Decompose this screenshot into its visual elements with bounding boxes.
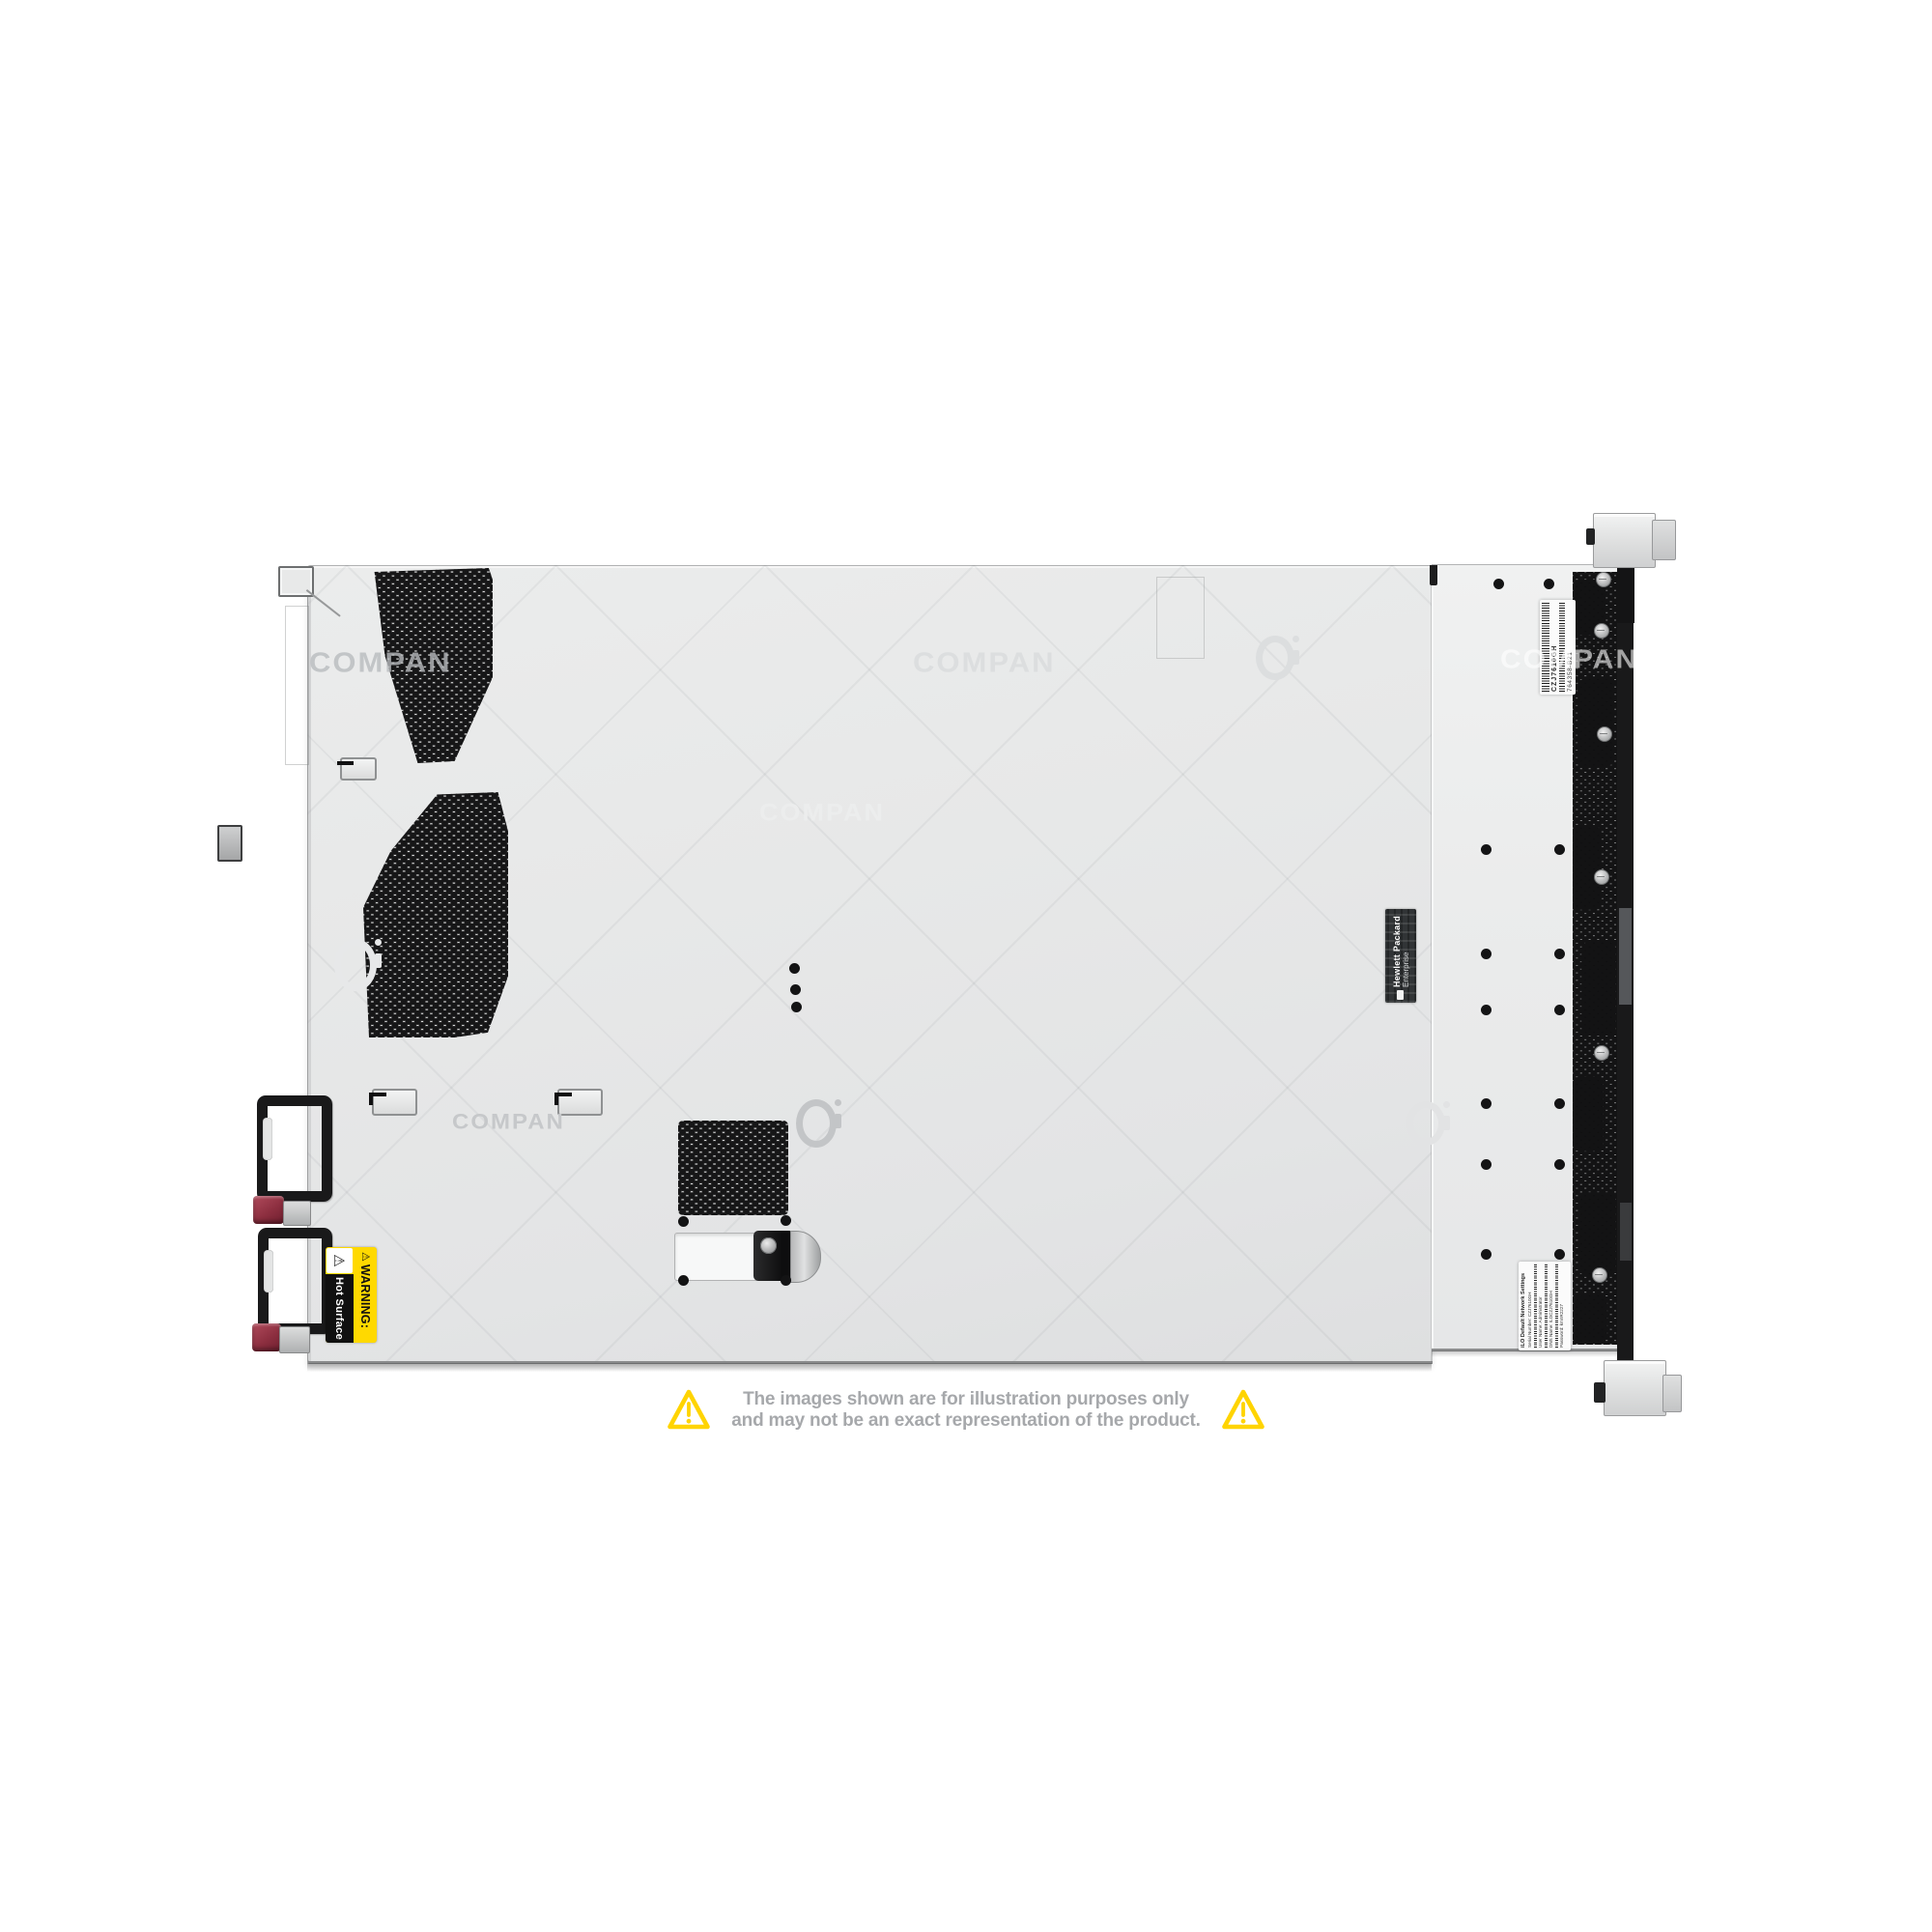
screw-hole <box>1481 949 1492 959</box>
screw-hole <box>1554 1159 1565 1170</box>
warning-triangle-icon: ⚠ <box>360 1252 371 1262</box>
screw-hole <box>1481 1098 1492 1109</box>
barcode <box>1534 1264 1538 1348</box>
barcode <box>1542 603 1549 692</box>
chassis-bottom-shadow <box>307 1363 1432 1372</box>
rear-edge-clip <box>217 825 242 862</box>
hpe-logo-mark <box>1397 990 1404 1000</box>
psu-latch-guide-2 <box>279 1326 310 1353</box>
front-bezel-segment <box>1620 1203 1632 1261</box>
screw-hole <box>1544 579 1554 589</box>
latch-corner-hole <box>678 1216 689 1227</box>
rack-ear-top-latch <box>1586 528 1595 545</box>
cover-latch-handle[interactable] <box>753 1231 794 1281</box>
screw-hole <box>1481 1005 1492 1015</box>
screw <box>1597 726 1612 742</box>
rack-ear-top <box>1593 513 1656 568</box>
screw-hole <box>1481 1249 1492 1260</box>
service-tag-serial: CZJ7610GH <box>1551 603 1558 692</box>
service-tag-part-number: 764358-B21 <box>1567 603 1574 692</box>
screw <box>1596 572 1611 587</box>
screw-hole <box>1554 949 1565 959</box>
ilo-settings-label: iLO Default Network Settings Serial Numb… <box>1519 1262 1571 1350</box>
warning-label-heading-row: ⚠ WARNING: <box>354 1247 377 1343</box>
rack-ear-bottom <box>1604 1360 1666 1416</box>
screw <box>1592 1267 1607 1283</box>
hot-surface-warning-label: ⚠ WARNING: ⚠ Hot Surface <box>326 1247 377 1343</box>
warning-label-body: Hot Surface <box>326 1274 354 1343</box>
hex-perforation-pattern <box>1573 572 1618 1345</box>
rack-ear-bottom-tab <box>1662 1375 1682 1412</box>
latch-corner-hole <box>781 1215 791 1226</box>
disclaimer-line1: The images shown are for illustration pu… <box>720 1389 1212 1410</box>
cover-tab-pin <box>554 1093 558 1105</box>
screw <box>1594 623 1609 639</box>
screw-hole <box>1554 1005 1565 1015</box>
rear-bracket-outline <box>285 606 309 765</box>
cover-tab-pin <box>369 1093 373 1105</box>
rack-ear-post-top <box>1617 563 1634 623</box>
warning-label-body-row: ⚠ Hot Surface <box>326 1247 354 1343</box>
warning-triangle-icon <box>1221 1387 1265 1433</box>
ilo-label-line: DNS Name: ILOCZJ7610GH <box>1548 1264 1553 1348</box>
screw-hole <box>1481 1159 1492 1170</box>
cover-vent-square <box>678 1121 788 1215</box>
ilo-label-line: Password: kmnR2227 <box>1559 1264 1564 1348</box>
psu-release-latch-1[interactable] <box>253 1196 284 1224</box>
front-hex-vent-strip <box>1573 572 1618 1345</box>
psu-handle-slot <box>264 1250 273 1293</box>
brand-label: Hewlett Packard Enterprise <box>1385 909 1416 1003</box>
barcode <box>1555 1264 1559 1348</box>
rack-ear-top-tab <box>1652 520 1676 560</box>
cover-latch-screw <box>760 1237 777 1254</box>
cover-hole <box>791 1002 802 1012</box>
screw-hole <box>1493 579 1504 589</box>
brand-line1: Hewlett Packard <box>1392 909 1402 987</box>
barcode <box>1559 603 1565 692</box>
screw <box>1594 869 1609 885</box>
product-photo: ⚠ WARNING: ⚠ Hot Surface Hewlett Packard… <box>0 0 1932 1932</box>
screw-hole <box>1481 844 1492 855</box>
cover-latch-recess <box>674 1233 765 1281</box>
latch-corner-hole <box>678 1275 689 1286</box>
screw-hole <box>1554 1098 1565 1109</box>
psu-handle-slot <box>263 1118 272 1160</box>
ilo-label-title: iLO Default Network Settings <box>1520 1264 1526 1348</box>
warning-label-heading: WARNING: <box>358 1264 372 1328</box>
cover-hole <box>790 984 801 995</box>
psu-latch-guide-1 <box>283 1201 311 1226</box>
cover-tab-pin <box>337 761 354 765</box>
screw <box>1594 1045 1609 1061</box>
ilo-label-line: Serial Number: CZJ7610GH <box>1527 1264 1532 1348</box>
front-plate-shadow <box>1432 1350 1631 1357</box>
ilo-label-line: User Name: Administrator <box>1538 1264 1543 1348</box>
latch-corner-hole <box>781 1275 791 1286</box>
barcode <box>1545 1264 1548 1348</box>
screw-hole <box>1554 1249 1565 1260</box>
brand-line2: Enterprise <box>1402 909 1410 987</box>
screw-hole <box>1554 844 1565 855</box>
service-tag-label: CZJ7610GH 764358-B21 <box>1540 600 1576 695</box>
rack-ear-bottom-latch <box>1594 1382 1605 1403</box>
psu-release-latch-2[interactable] <box>252 1323 281 1351</box>
cover-hole <box>789 963 800 974</box>
cover-panel-outline <box>1156 577 1205 659</box>
disclaimer-text: The images shown are for illustration pu… <box>720 1389 1212 1432</box>
cover-seam-notch <box>1430 565 1437 585</box>
hot-surface-icon: ⚠ <box>327 1248 353 1273</box>
disclaimer-line2: and may not be an exact representation o… <box>720 1410 1212 1432</box>
disclaimer-banner: The images shown are for illustration pu… <box>667 1387 1265 1433</box>
warning-triangle-icon <box>667 1387 711 1433</box>
front-bezel-segment <box>1619 908 1632 1005</box>
